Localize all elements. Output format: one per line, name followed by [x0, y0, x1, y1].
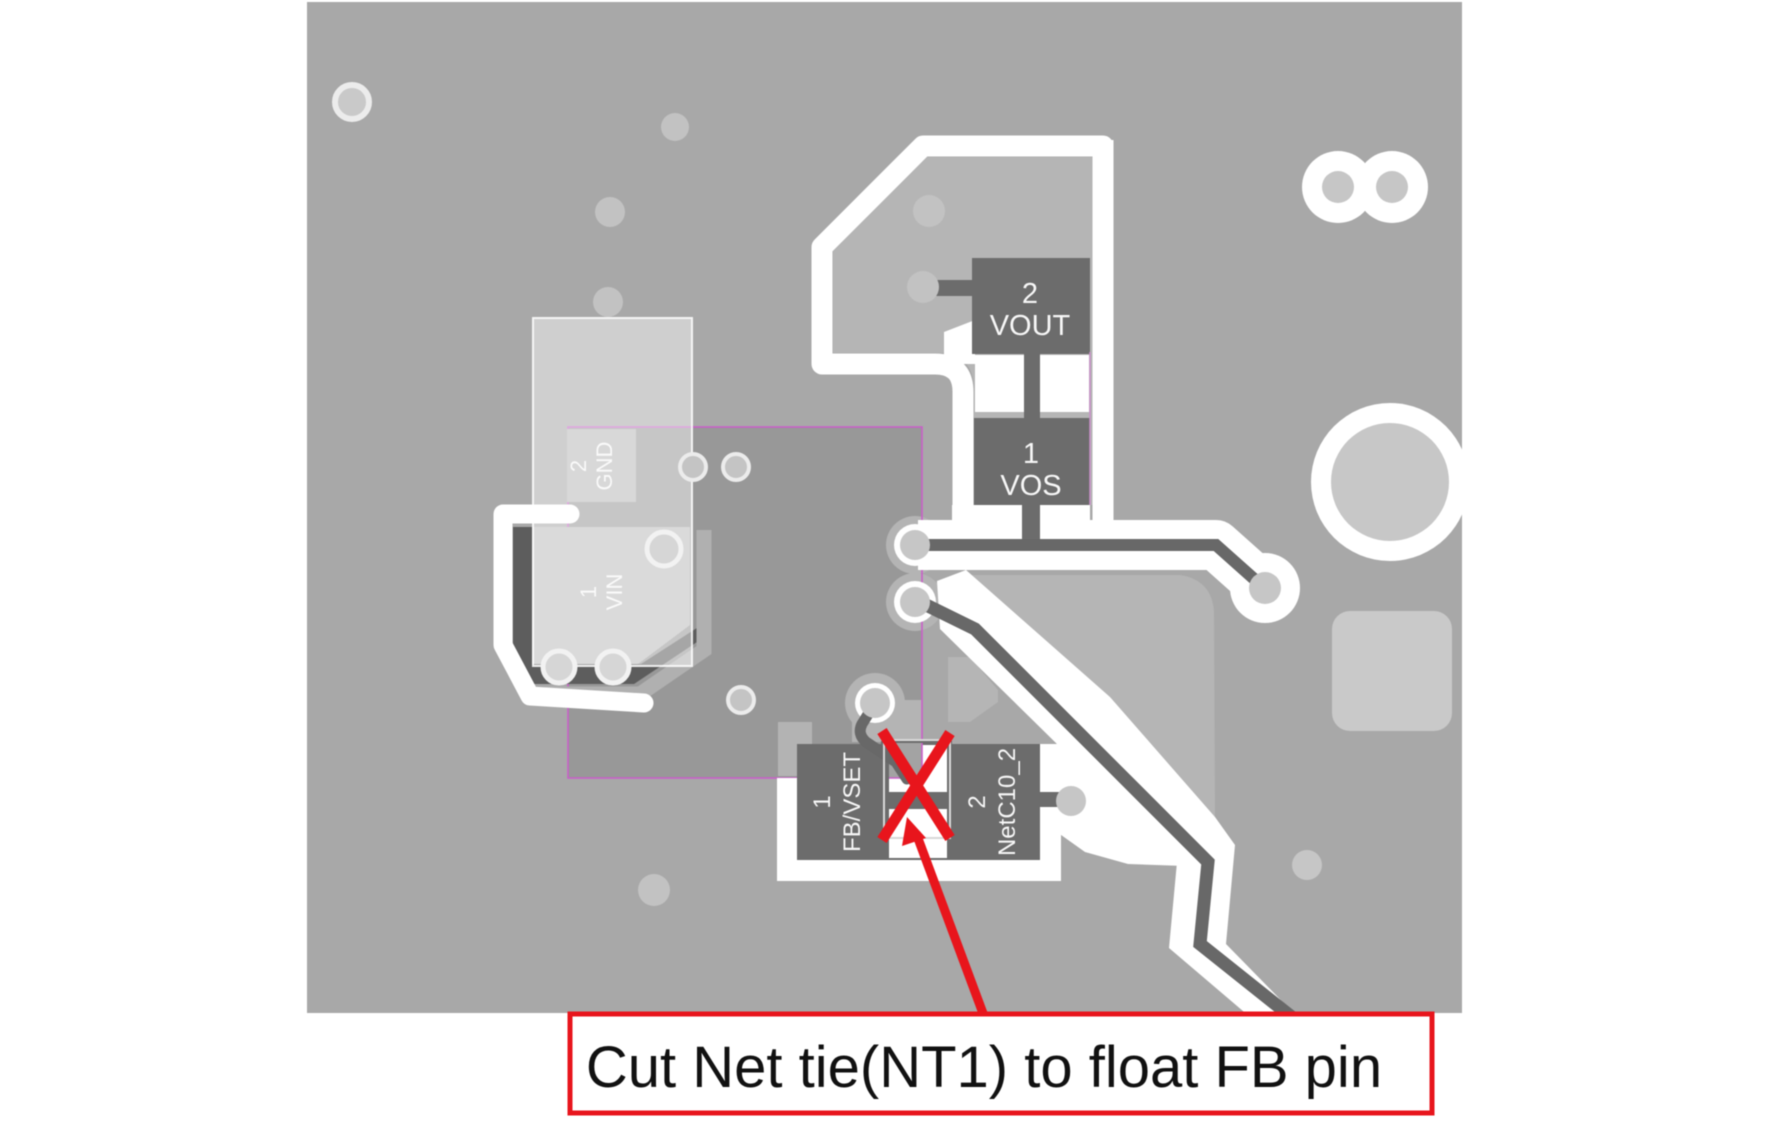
svg-text:1: 1 [809, 795, 836, 808]
svg-text:FB/VSET: FB/VSET [839, 752, 866, 852]
svg-text:1: 1 [576, 586, 601, 598]
svg-text:2: 2 [964, 795, 991, 808]
svg-text:VIN: VIN [602, 574, 627, 611]
svg-text:1: 1 [1023, 438, 1039, 470]
svg-text:Cut Net tie(NT1) to float FB p: Cut Net tie(NT1) to float FB pin [586, 1035, 1382, 1100]
svg-text:VOS: VOS [1000, 470, 1061, 502]
svg-text:2: 2 [566, 460, 591, 472]
svg-text:NetC10_2: NetC10_2 [994, 748, 1021, 856]
svg-text:2: 2 [1022, 278, 1038, 310]
svg-text:GND: GND [592, 442, 617, 491]
svg-text:VOUT: VOUT [990, 310, 1071, 342]
